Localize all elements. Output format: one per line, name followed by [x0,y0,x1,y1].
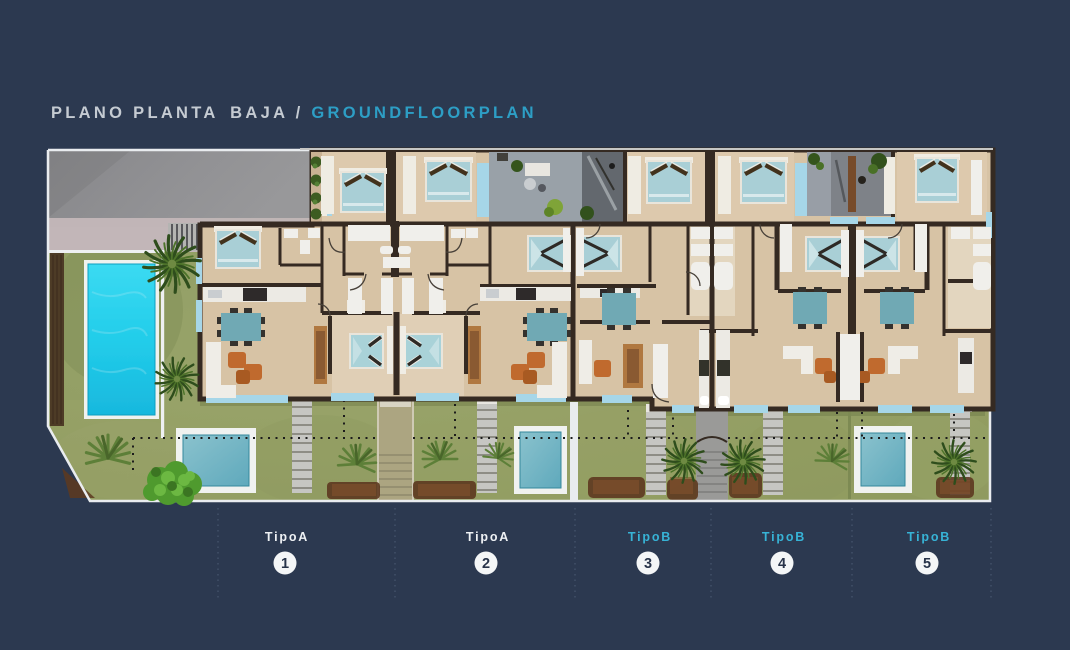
svg-text:PLANO PLANTA BAJA / GROUNDFLOO: PLANO PLANTA BAJA / GROUNDFLOORPLAN [51,104,537,122]
svg-text:TipoA: TipoA [466,530,510,544]
svg-text:TipoA: TipoA [265,530,309,544]
svg-text:3: 3 [644,556,652,572]
svg-text:TipoB: TipoB [762,530,806,544]
svg-text:TipoB: TipoB [907,530,951,544]
svg-text:2: 2 [482,556,490,572]
svg-text:5: 5 [923,556,931,572]
svg-text:4: 4 [778,556,786,572]
svg-text:1: 1 [281,556,289,572]
svg-text:TipoB: TipoB [628,530,672,544]
